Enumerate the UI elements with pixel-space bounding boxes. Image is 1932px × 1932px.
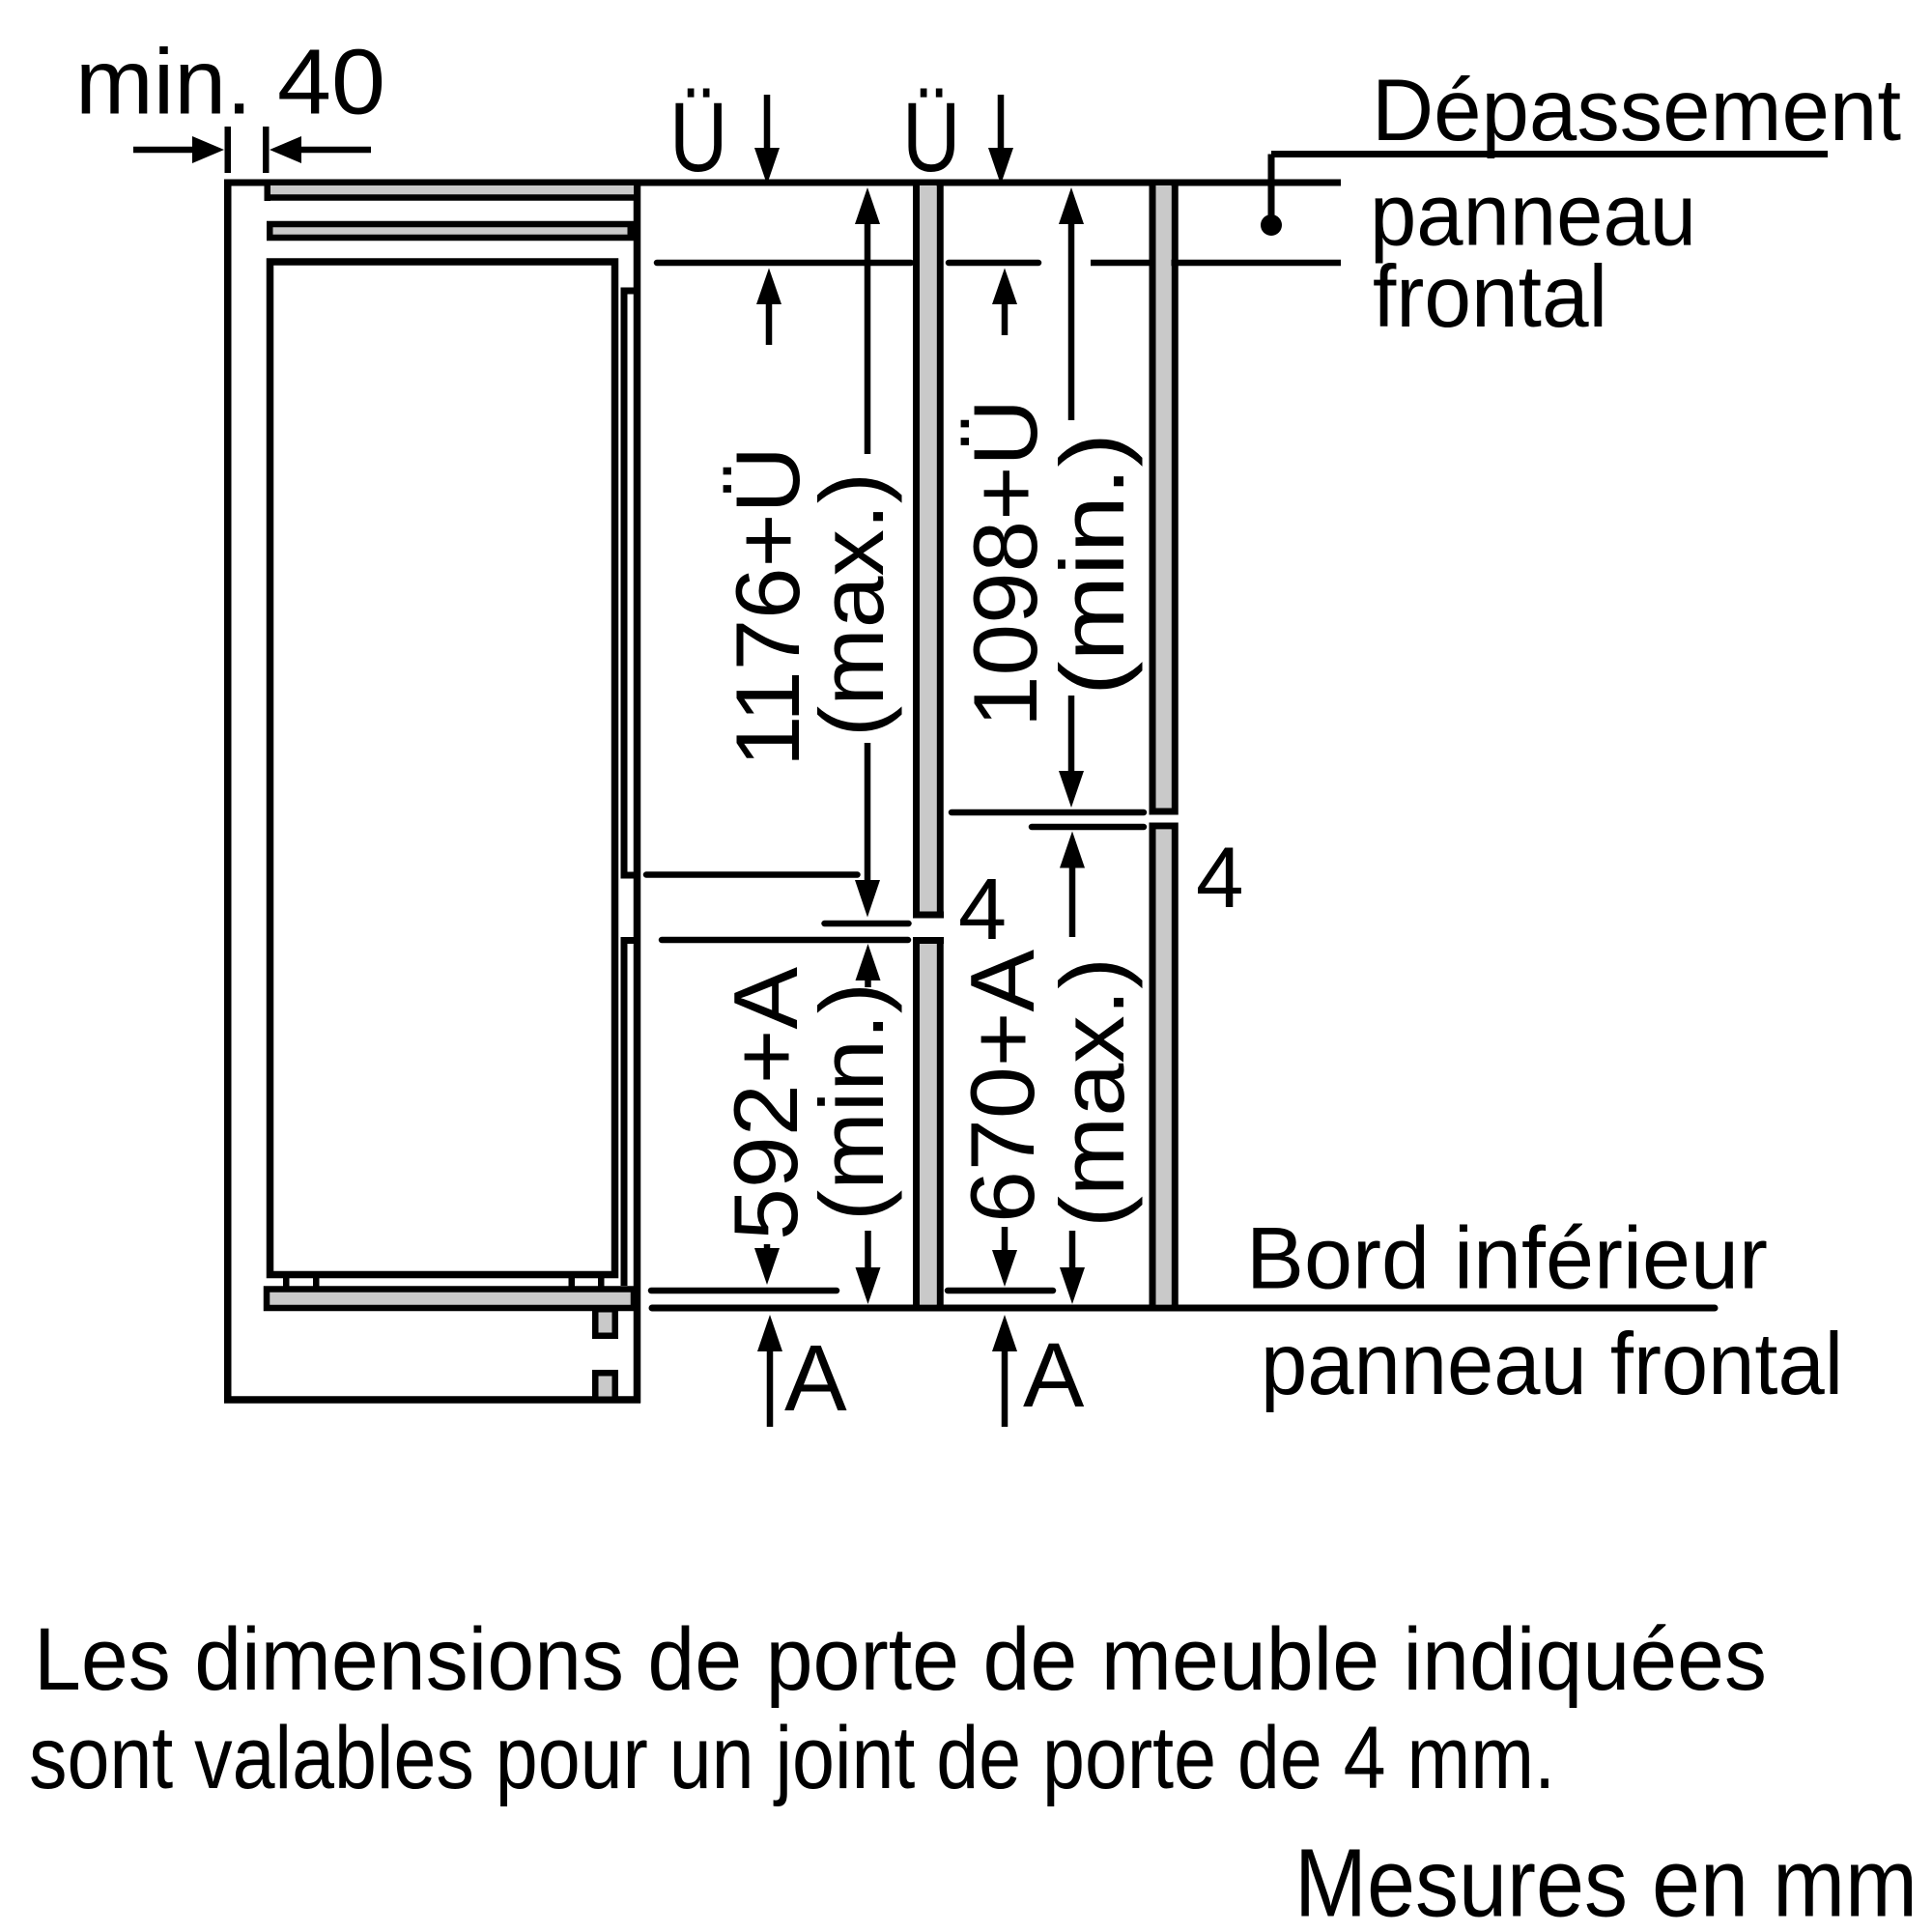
svg-text:Ü: Ü <box>669 82 727 192</box>
svg-text:min.: min. <box>75 31 252 134</box>
svg-text:(min.): (min.) <box>801 982 902 1221</box>
svg-text:Bord inférieur: Bord inférieur <box>1246 1210 1768 1308</box>
svg-text:(max.): (max.) <box>1041 957 1143 1228</box>
svg-text:sont valables pour un joint de: sont valables pour un joint de porte de … <box>29 1709 1555 1807</box>
svg-text:Dépassement: Dépassement <box>1372 62 1901 159</box>
svg-text:(min.): (min.) <box>1041 433 1143 696</box>
svg-text:A: A <box>1023 1324 1085 1427</box>
svg-text:(max.): (max.) <box>801 472 902 737</box>
svg-text:4: 4 <box>1196 829 1244 925</box>
svg-text:Les dimensions de porte de meu: Les dimensions de porte de meuble indiqu… <box>34 1610 1767 1709</box>
svg-text:panneau frontal: panneau frontal <box>1261 1316 1843 1413</box>
svg-text:4: 4 <box>958 862 1007 958</box>
svg-text:A: A <box>784 1325 847 1431</box>
svg-text:Mesures en mm: Mesures en mm <box>1294 1830 1918 1932</box>
svg-text:40: 40 <box>277 31 385 134</box>
svg-text:Ü: Ü <box>902 82 960 192</box>
svg-text:frontal: frontal <box>1373 248 1607 346</box>
svg-text:670+A: 670+A <box>952 950 1053 1223</box>
